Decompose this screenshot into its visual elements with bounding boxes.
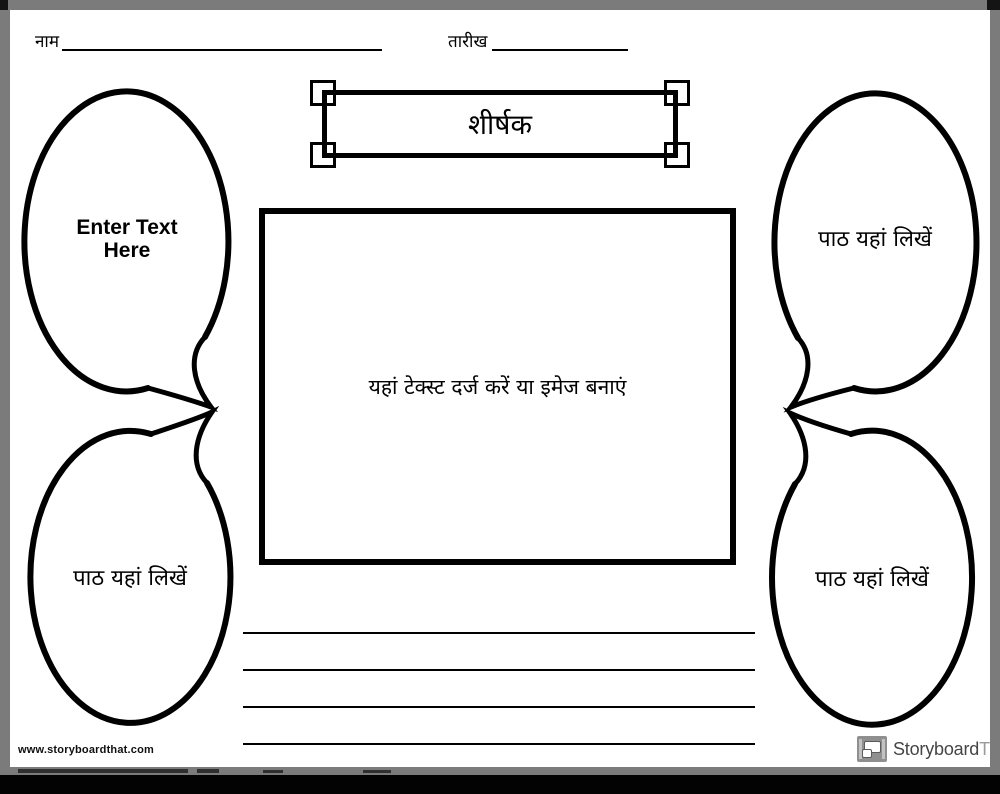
bubble-text-bottom-left[interactable]: पाठ यहां लिखें bbox=[50, 549, 210, 605]
scan-smudge bbox=[18, 769, 188, 773]
brand-primary: Storyboard bbox=[893, 739, 979, 759]
title-text: शीर्षक bbox=[468, 105, 532, 143]
scan-smudge bbox=[263, 770, 283, 773]
scan-smudge bbox=[197, 769, 219, 773]
storyboardthat-wordmark: StoryboardThat bbox=[893, 739, 1000, 760]
scan-smudge bbox=[363, 770, 391, 773]
page-corner-mark bbox=[0, 0, 8, 10]
page-frame-left bbox=[0, 10, 10, 767]
bubble-text-bottom-right[interactable]: पाठ यहां लिखें bbox=[792, 550, 952, 606]
title-box[interactable]: शीर्षक bbox=[322, 90, 678, 158]
image-box[interactable]: यहां टेक्स्ट दर्ज करें या इमेज बनाएं bbox=[259, 208, 736, 565]
date-label: तारीख bbox=[448, 33, 487, 51]
bubble-text-top-right[interactable]: पाठ यहां लिखें bbox=[795, 210, 955, 266]
page-corner-mark bbox=[987, 0, 1000, 10]
bubble-text-top-left[interactable]: Enter Text Here bbox=[52, 195, 202, 285]
writing-line[interactable] bbox=[243, 671, 755, 708]
date-fill-line[interactable] bbox=[492, 49, 628, 51]
title-frame[interactable]: शीर्षक bbox=[310, 78, 690, 170]
writing-line[interactable] bbox=[243, 708, 755, 745]
writing-lines-area bbox=[243, 597, 755, 745]
name-label: नाम bbox=[35, 33, 59, 51]
storyboardthat-logo-icon bbox=[857, 736, 887, 762]
website-url: www.storyboardthat.com bbox=[18, 744, 154, 756]
image-box-placeholder: यहां टेक्स्ट दर्ज करें या इमेज बनाएं bbox=[369, 373, 627, 401]
writing-line[interactable] bbox=[243, 634, 755, 671]
name-fill-line[interactable] bbox=[62, 49, 382, 51]
writing-line[interactable] bbox=[243, 597, 755, 634]
page-frame-right bbox=[990, 10, 1000, 767]
page-frame-bottom-black bbox=[0, 775, 1000, 794]
worksheet-page: नाम तारीख शीर्षक यहां टेक्स्ट दर्ज करें … bbox=[0, 0, 1000, 794]
page-frame-top bbox=[0, 0, 1000, 10]
